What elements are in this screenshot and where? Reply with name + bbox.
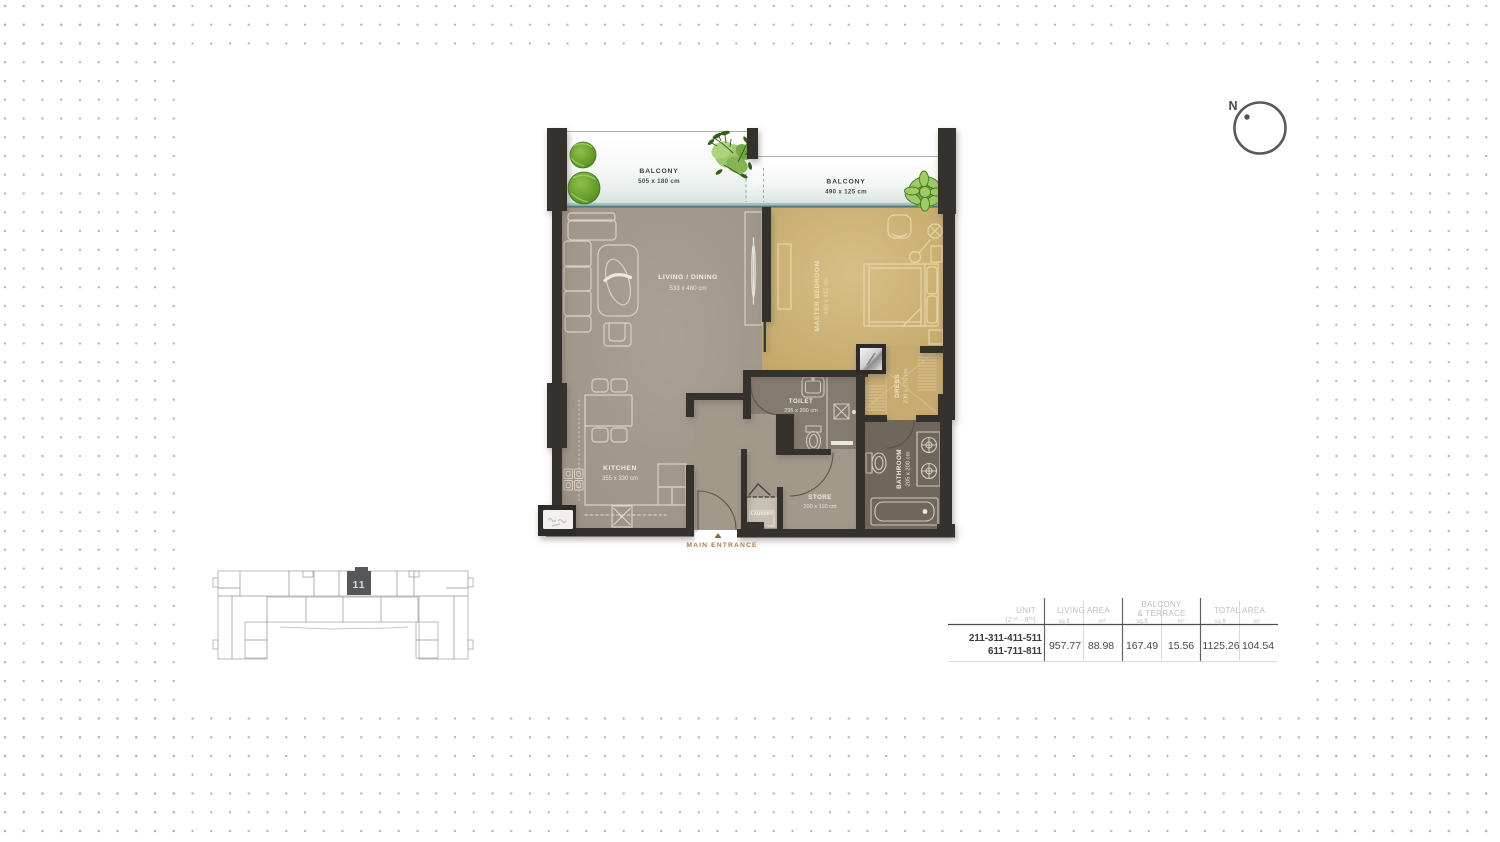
svg-text:LIVING / DINING: LIVING / DINING [658, 274, 718, 281]
svg-text:sq.ft: sq.ft [1214, 619, 1226, 625]
svg-text:TOILET: TOILET [789, 398, 814, 405]
svg-text:460 x 415 cm: 460 x 415 cm [823, 277, 830, 314]
svg-text:BALCONY: BALCONY [639, 168, 678, 175]
svg-text:LAUNDRY: LAUNDRY [751, 511, 773, 516]
svg-text:BALCONY: BALCONY [826, 179, 865, 186]
svg-text:505 x 180 cm: 505 x 180 cm [638, 178, 680, 185]
svg-text:MAIN ENTRANCE: MAIN ENTRANCE [686, 542, 757, 549]
svg-text:355 x 330 cm: 355 x 330 cm [602, 476, 638, 482]
svg-text:(2nd - 8th): (2nd - 8th) [1005, 616, 1036, 624]
svg-text:230 x 175 cm: 230 x 175 cm [904, 368, 910, 403]
svg-text:N: N [1228, 99, 1237, 113]
svg-text:BALCONY: BALCONY [1141, 600, 1182, 609]
svg-text:611-711-811: 611-711-811 [988, 646, 1042, 657]
svg-text:533 x 480 cm: 533 x 480 cm [669, 285, 706, 292]
svg-text:DRESS: DRESS [894, 374, 901, 398]
svg-text:BATHROOM: BATHROOM [896, 449, 903, 489]
svg-text:m²: m² [1178, 619, 1185, 625]
svg-text:1125.26: 1125.26 [1202, 640, 1239, 652]
svg-text:m²: m² [1099, 619, 1106, 625]
svg-text:KITCHEN: KITCHEN [603, 465, 637, 472]
svg-text:167.49: 167.49 [1126, 640, 1158, 652]
svg-text:11: 11 [352, 579, 365, 591]
svg-text:sq.ft: sq.ft [1058, 619, 1070, 625]
svg-text:& TERRACE: & TERRACE [1137, 609, 1185, 618]
svg-text:MASTER BEDROOM: MASTER BEDROOM [814, 260, 821, 331]
svg-text:STORE: STORE [808, 494, 831, 501]
svg-text:88.98: 88.98 [1088, 640, 1114, 652]
svg-text:TOTAL AREA: TOTAL AREA [1214, 606, 1266, 615]
svg-text:211-311-411-511: 211-311-411-511 [969, 633, 1043, 644]
svg-text:200 x 110 cm: 200 x 110 cm [803, 504, 837, 510]
svg-text:104.54: 104.54 [1242, 640, 1274, 652]
svg-text:205 x 200 cm: 205 x 200 cm [906, 451, 912, 486]
svg-text:490 x 125 cm: 490 x 125 cm [825, 189, 867, 196]
svg-text:UNIT: UNIT [1016, 606, 1036, 615]
svg-text:15.56: 15.56 [1168, 640, 1194, 652]
svg-text:LIVING AREA: LIVING AREA [1057, 606, 1110, 615]
svg-text:sq.ft: sq.ft [1136, 619, 1148, 625]
svg-text:957.77: 957.77 [1049, 640, 1081, 652]
svg-text:295 x 200 cm: 295 x 200 cm [784, 408, 818, 414]
svg-text:m²: m² [1254, 619, 1261, 625]
